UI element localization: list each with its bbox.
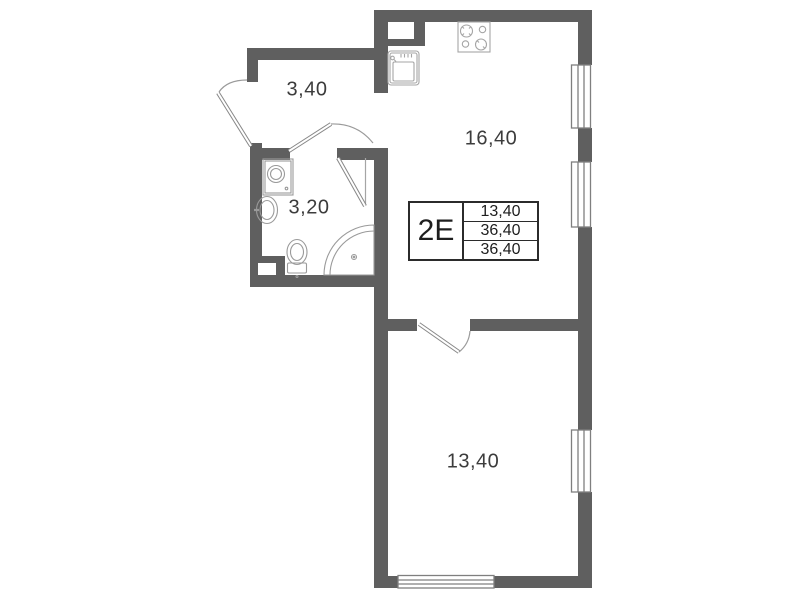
wall-hall-endcap: [247, 48, 258, 82]
wall-bath-top-right: [337, 148, 375, 160]
wall-right-4: [578, 492, 592, 588]
kitchen-door: [289, 124, 373, 151]
wall-right-1: [578, 10, 592, 65]
room-label-hall: 3,40: [287, 79, 328, 102]
wall-top-main: [374, 10, 592, 22]
stove-symbol: [458, 22, 490, 52]
wall-bath-bottom: [250, 275, 388, 287]
washing-machine-symbol: [263, 159, 293, 195]
unit-area-row: 36,40: [464, 241, 537, 259]
unit-info-table: 2E 13,40 36,40 36,40: [408, 201, 539, 261]
unit-area-row: 13,40: [464, 203, 537, 222]
window-kitchen-1: [572, 65, 591, 128]
wall-hall-top: [248, 48, 374, 60]
unit-area-values: 13,40 36,40 36,40: [464, 203, 537, 259]
window-kitchen-2: [572, 162, 591, 227]
bathroom-door: [338, 158, 366, 206]
window-bedroom-right: [572, 430, 591, 492]
floor-plan-drawing: [0, 0, 799, 600]
entrance-door: [218, 80, 251, 146]
kitchen-duct: [388, 22, 414, 39]
pillar-bath-right: [276, 263, 285, 275]
unit-code: 2E: [410, 203, 464, 259]
bathroom-duct: [258, 263, 276, 275]
wall-left-lower: [374, 148, 388, 588]
pillar-kitchen-bottom: [388, 39, 425, 46]
room-label-bedroom: 13,40: [447, 451, 500, 474]
room-label-kitchen-living: 16,40: [465, 128, 518, 151]
bedroom-door: [419, 324, 470, 352]
floor-plan: 3,40 3,20 16,40 13,40 2E 13,40 36,40 36,…: [0, 0, 799, 600]
wall-bath-top-left: [250, 148, 290, 160]
window-bedroom-bottom: [398, 576, 494, 589]
shower-symbol: [324, 225, 374, 275]
wall-divider-left: [388, 319, 417, 331]
unit-area-row: 36,40: [464, 222, 537, 241]
wall-divider-right: [470, 319, 578, 331]
toilet-symbol: [287, 240, 307, 278]
wall-bottom-2: [494, 576, 592, 588]
pillar-bath-top: [258, 256, 285, 263]
room-label-bathroom: 3,20: [289, 197, 330, 220]
wall-left-upper: [374, 10, 388, 93]
wall-right-2: [578, 128, 592, 162]
wall-right-3: [578, 227, 592, 430]
kitchen-sink-symbol: [388, 51, 419, 85]
